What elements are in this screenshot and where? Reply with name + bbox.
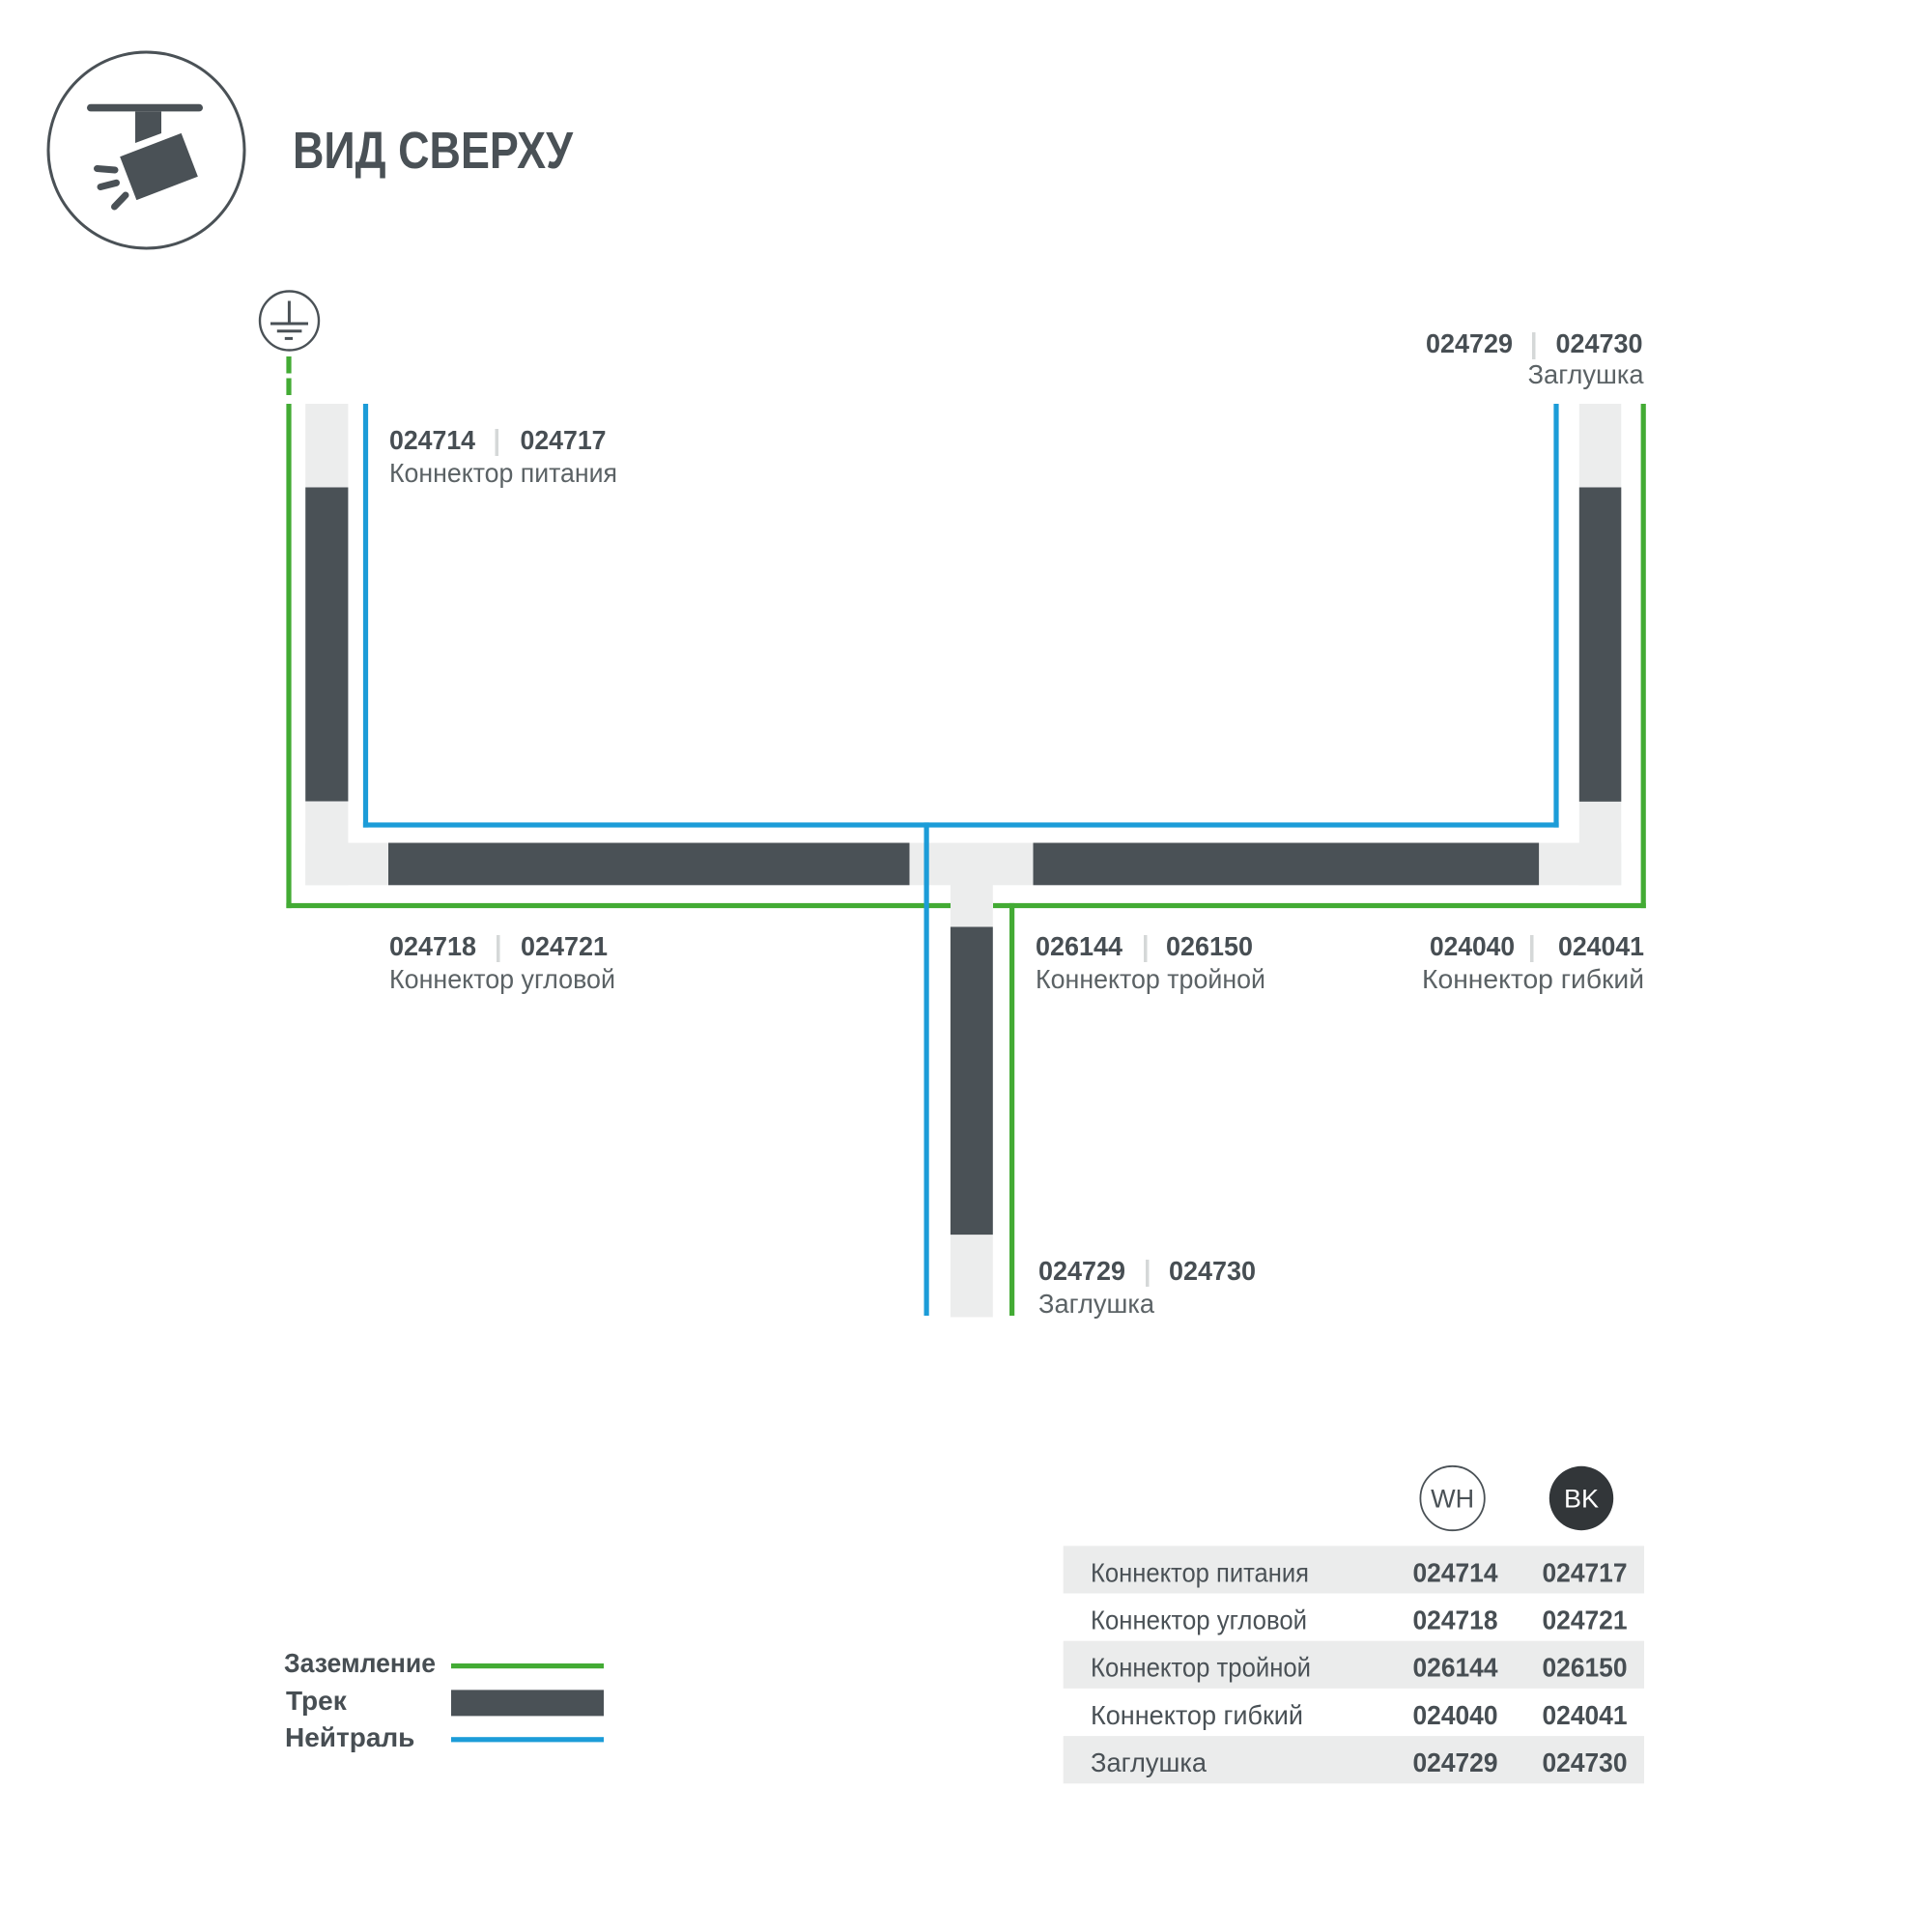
svg-text:026144: 026144	[1413, 1653, 1498, 1683]
svg-text:Коннектор гибкий: Коннектор гибкий	[1091, 1700, 1303, 1730]
svg-text:024717: 024717	[1543, 1557, 1628, 1587]
svg-text:024714: 024714	[389, 425, 475, 455]
svg-text:Трек: Трек	[286, 1686, 348, 1716]
svg-text:024040: 024040	[1413, 1700, 1498, 1730]
svg-text:024730: 024730	[1543, 1747, 1628, 1777]
svg-text:Заземление: Заземление	[284, 1648, 436, 1678]
svg-text:026150: 026150	[1166, 931, 1253, 961]
svg-text:024730: 024730	[1169, 1256, 1256, 1286]
svg-text:024730: 024730	[1556, 328, 1643, 358]
svg-text:024721: 024721	[521, 931, 608, 961]
svg-text:Нейтраль: Нейтраль	[285, 1722, 414, 1752]
svg-text:024717: 024717	[521, 425, 607, 455]
svg-text:024729: 024729	[1038, 1256, 1125, 1286]
svg-text:Коннектор питания: Коннектор питания	[1091, 1557, 1309, 1587]
svg-text:026150: 026150	[1543, 1653, 1628, 1683]
svg-text:Заглушка: Заглушка	[1528, 359, 1644, 389]
svg-text:024040: 024040	[1430, 931, 1515, 961]
svg-text:Коннектор питания: Коннектор питания	[389, 458, 617, 488]
svg-text:BK: BK	[1564, 1485, 1599, 1514]
svg-text:026144: 026144	[1036, 931, 1122, 961]
svg-text:Коннектор тройной: Коннектор тройной	[1036, 964, 1265, 994]
svg-text:024729: 024729	[1426, 328, 1513, 358]
svg-text:Коннектор гибкий: Коннектор гибкий	[1422, 964, 1644, 994]
svg-text:024718: 024718	[389, 931, 476, 961]
svg-text:ВИД СВЕРХУ: ВИД СВЕРХУ	[293, 122, 574, 180]
svg-text:024041: 024041	[1558, 931, 1644, 961]
svg-text:Заглушка: Заглушка	[1038, 1289, 1154, 1319]
svg-text:024729: 024729	[1413, 1747, 1498, 1777]
svg-text:Коннектор угловой: Коннектор угловой	[389, 964, 615, 994]
svg-text:Заглушка: Заглушка	[1091, 1747, 1207, 1777]
svg-text:Коннектор тройной: Коннектор тройной	[1091, 1653, 1311, 1683]
svg-text:024718: 024718	[1413, 1605, 1498, 1635]
svg-text:Коннектор угловой: Коннектор угловой	[1091, 1605, 1307, 1635]
svg-text:024041: 024041	[1543, 1700, 1628, 1730]
svg-text:WH: WH	[1431, 1485, 1474, 1514]
svg-text:024721: 024721	[1543, 1605, 1628, 1635]
svg-text:024714: 024714	[1413, 1557, 1498, 1587]
